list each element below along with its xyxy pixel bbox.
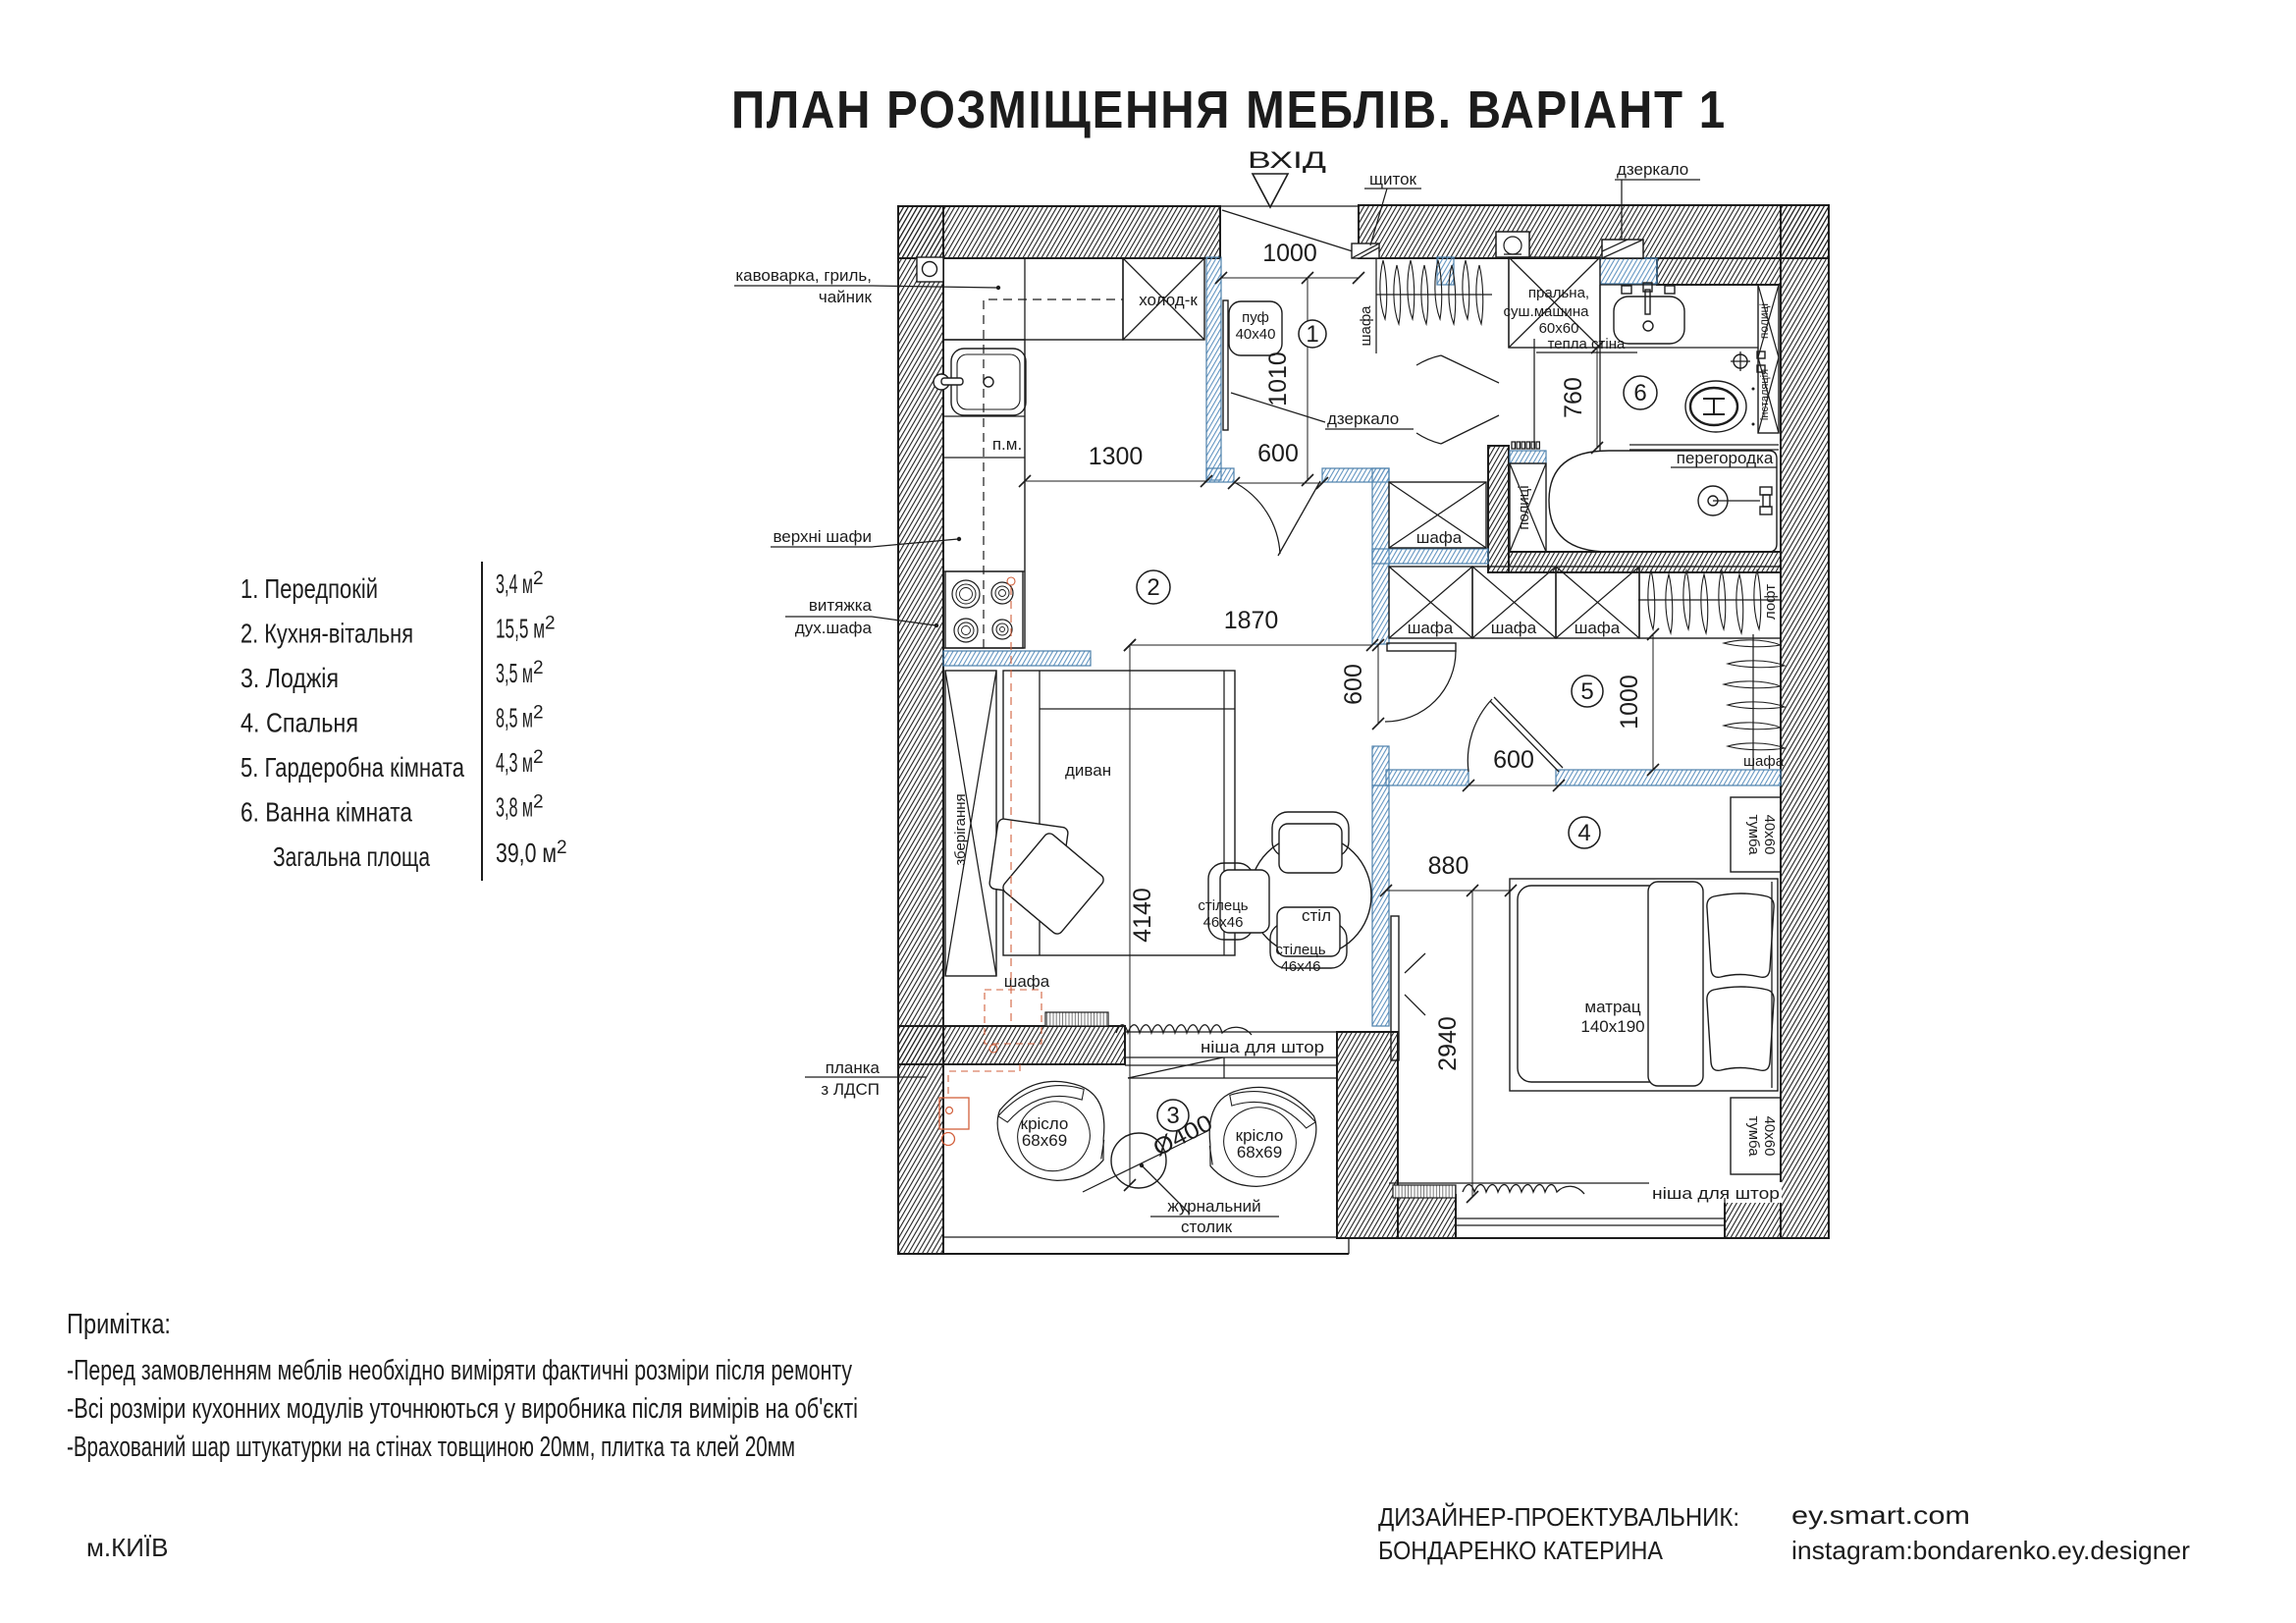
svg-text:Примітка:: Примітка: <box>67 1309 171 1340</box>
svg-text:40х60: 40х60 <box>1761 815 1778 855</box>
svg-text:2: 2 <box>1147 574 1159 601</box>
svg-text:140х190: 140х190 <box>1580 1017 1644 1036</box>
svg-text:полиці: полиці <box>1757 303 1771 339</box>
svg-text:витяжка: витяжка <box>809 596 873 615</box>
svg-text:шафа: шафа <box>1358 305 1374 347</box>
svg-text:зберігання: зберігання <box>952 793 969 865</box>
svg-text:2. Кухня-вітальня: 2. Кухня-вітальня <box>240 619 413 649</box>
svg-text:шафа: шафа <box>1575 619 1621 637</box>
svg-text:пральна,: пральна, <box>1528 285 1589 301</box>
svg-text:880: 880 <box>1428 852 1469 880</box>
svg-text:щиток: щиток <box>1369 170 1417 189</box>
svg-text:1000: 1000 <box>1262 240 1317 267</box>
svg-text:1. Передпокій: 1. Передпокій <box>240 573 378 604</box>
svg-text:дух.шафа: дух.шафа <box>795 619 873 637</box>
svg-text:5. Гардеробна кімната: 5. Гардеробна кімната <box>240 752 464 783</box>
svg-text:46х46: 46х46 <box>1203 914 1244 931</box>
svg-text:тумба: тумба <box>1745 1115 1762 1157</box>
svg-text:5: 5 <box>1580 678 1593 705</box>
svg-text:1010: 1010 <box>1264 352 1292 406</box>
svg-text:ніша для штор: ніша для штор <box>1652 1184 1780 1203</box>
svg-text:4. Спальня: 4. Спальня <box>240 708 358 738</box>
svg-text:стіл: стіл <box>1302 906 1331 925</box>
svg-text:диван: диван <box>1065 761 1111 780</box>
svg-text:тепла стіна: тепла стіна <box>1548 336 1626 352</box>
svg-text:760: 760 <box>1560 377 1587 418</box>
svg-text:1: 1 <box>1306 321 1318 348</box>
svg-text:2940: 2940 <box>1434 1016 1462 1071</box>
svg-text:шафа: шафа <box>1408 619 1454 637</box>
svg-text:кавоварка, гриль,: кавоварка, гриль, <box>735 266 872 285</box>
svg-text:-Всі розміри кухонних модулів: -Всі розміри кухонних модулів уточнюютьс… <box>67 1393 858 1425</box>
svg-text:68х69: 68х69 <box>1237 1143 1282 1162</box>
svg-text:лофт: лофт <box>1762 584 1779 620</box>
svg-text:стілець: стілець <box>1275 942 1325 958</box>
svg-text:перегородка: перегородка <box>1677 449 1774 467</box>
svg-text:4: 4 <box>1577 820 1590 846</box>
svg-text:600: 600 <box>1340 664 1367 705</box>
svg-text:6. Ванна кімната: 6. Ванна кімната <box>240 797 412 828</box>
svg-text:шафа: шафа <box>1416 528 1463 547</box>
svg-text:дзеркало: дзеркало <box>1617 160 1688 179</box>
svg-text:ВХІД: ВХІД <box>1248 147 1326 174</box>
svg-text:ПЛАН РОЗМІЩЕННЯ МЕБЛІВ. ВАРІАН: ПЛАН РОЗМІЩЕННЯ МЕБЛІВ. ВАРІАНТ 1 <box>731 81 1727 139</box>
svg-text:1000: 1000 <box>1616 675 1643 730</box>
svg-text:40х40: 40х40 <box>1236 326 1276 343</box>
svg-text:холод-к: холод-к <box>1139 291 1198 309</box>
svg-text:шафа: шафа <box>1491 619 1537 637</box>
svg-text:1300: 1300 <box>1089 443 1144 470</box>
svg-text:ey.smart.com: ey.smart.com <box>1791 1500 1970 1530</box>
svg-text:68х69: 68х69 <box>1022 1131 1067 1150</box>
svg-text:пуф: пуф <box>1242 309 1269 326</box>
svg-text:-Перед замовленням меблів необ: -Перед замовленням меблів необхідно вимі… <box>67 1355 852 1386</box>
svg-text:шафа: шафа <box>1743 753 1785 770</box>
svg-text:46х46: 46х46 <box>1281 958 1321 975</box>
svg-text:instagram:bondarenko.ey.design: instagram:bondarenko.ey.designer <box>1791 1536 2190 1565</box>
svg-text:4140: 4140 <box>1129 888 1156 943</box>
svg-text:3. Лоджія: 3. Лоджія <box>240 663 339 693</box>
svg-text:столик: столик <box>1181 1217 1233 1236</box>
svg-text:дзеркало: дзеркало <box>1327 409 1399 428</box>
svg-text:стілець: стілець <box>1198 897 1248 914</box>
svg-text:600: 600 <box>1493 746 1534 774</box>
svg-text:3: 3 <box>1166 1103 1179 1129</box>
svg-text:м.КИЇВ: м.КИЇВ <box>86 1533 169 1562</box>
svg-text:планка: планка <box>826 1058 881 1077</box>
svg-text:суш.машина: суш.машина <box>1504 303 1590 320</box>
svg-text:з ЛДСП: з ЛДСП <box>821 1080 880 1099</box>
svg-text:ніша для штор: ніша для штор <box>1201 1038 1324 1056</box>
svg-text:-Врахований шар штукатурки на: -Врахований шар штукатурки на стінах тов… <box>67 1432 795 1463</box>
svg-text:1870: 1870 <box>1224 607 1279 634</box>
svg-text:60х60: 60х60 <box>1539 320 1579 337</box>
svg-text:матрац: матрац <box>1584 998 1640 1016</box>
svg-text:тумба: тумба <box>1745 814 1762 855</box>
svg-text:6: 6 <box>1633 380 1646 406</box>
svg-text:39,0 м2: 39,0 м2 <box>496 838 567 868</box>
svg-text:чайник: чайник <box>819 288 873 306</box>
svg-text:інсталяція: інсталяція <box>1759 369 1771 420</box>
svg-text:Загальна площа: Загальна площа <box>273 841 430 872</box>
svg-text:600: 600 <box>1257 440 1299 467</box>
svg-text:верхні шафи: верхні шафи <box>773 527 872 546</box>
svg-text:40х60: 40х60 <box>1761 1116 1778 1157</box>
svg-text:полиці: полиці <box>1516 485 1532 529</box>
svg-text:БОНДАРЕНКО КАТЕРИНА: БОНДАРЕНКО КАТЕРИНА <box>1378 1536 1664 1565</box>
svg-text:ДИЗАЙНЕР-ПРОЕКТУВАЛЬНИК:: ДИЗАЙНЕР-ПРОЕКТУВАЛЬНИК: <box>1378 1502 1739 1532</box>
svg-text:п.м.: п.м. <box>992 435 1022 454</box>
